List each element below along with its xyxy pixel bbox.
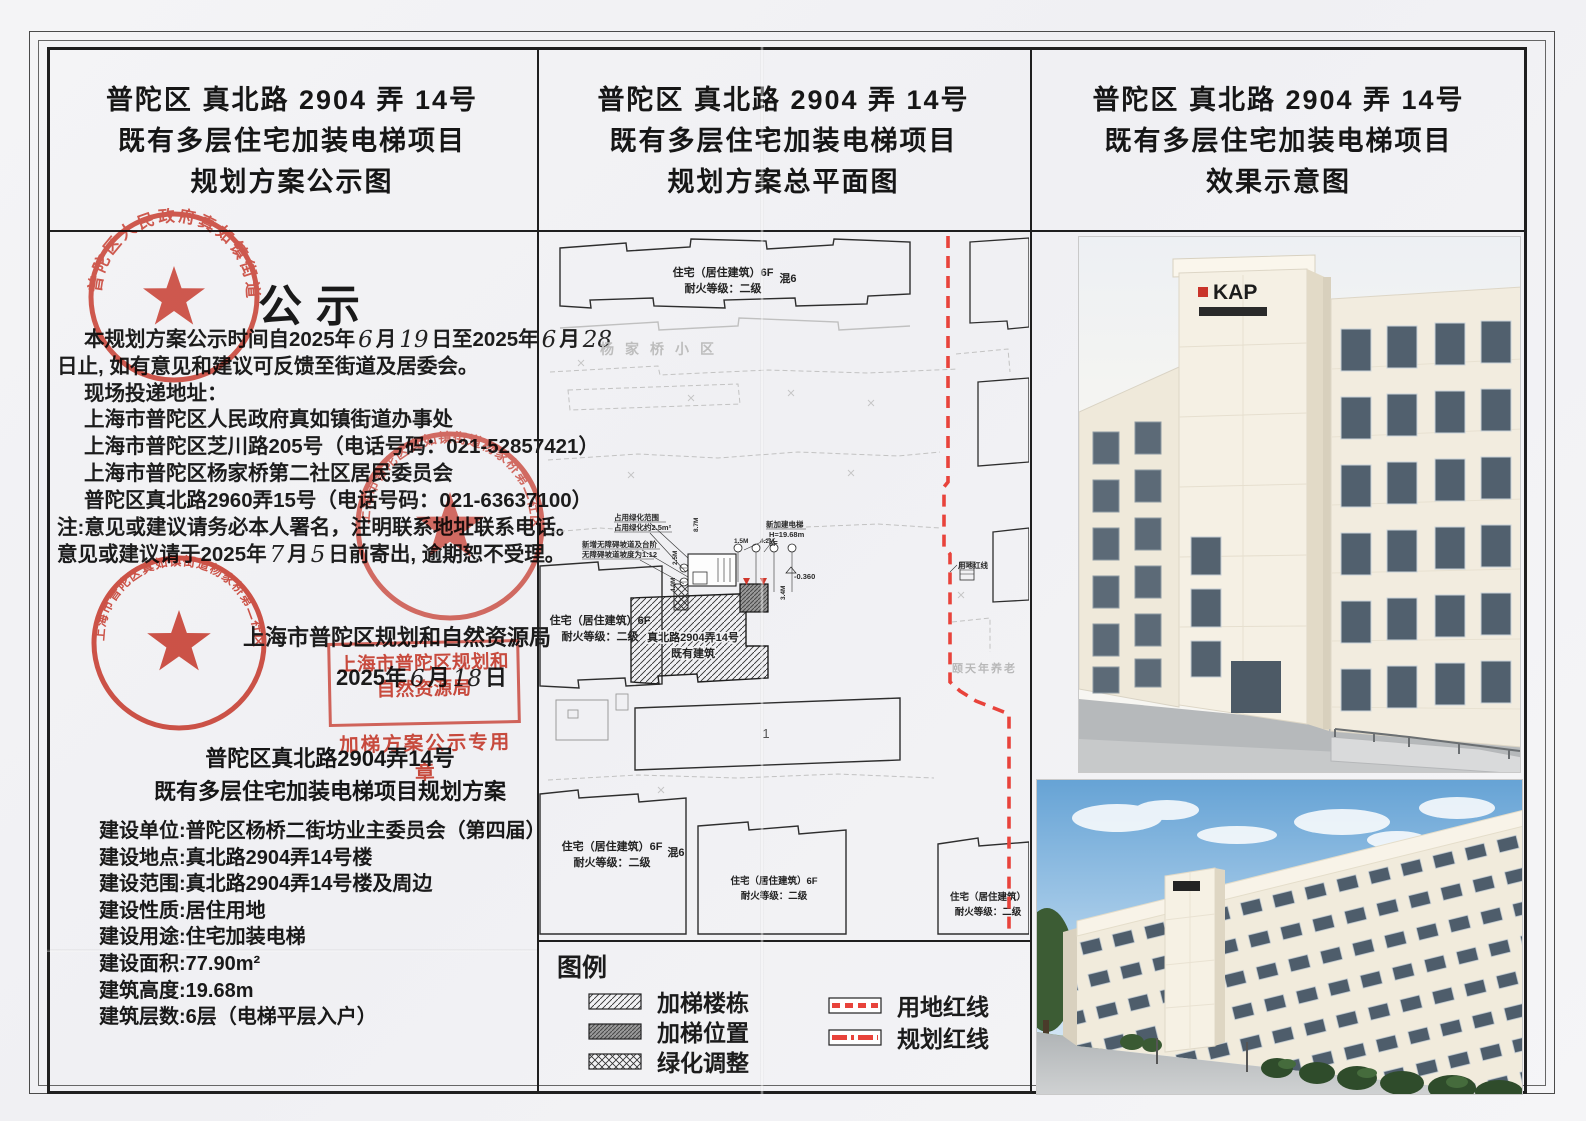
existing-building-label2: 既有建筑 xyxy=(671,646,715,660)
field-row: 建设单位:普陀区杨桥二街坊业主委员会（第四届） xyxy=(99,818,546,845)
field-row: 建筑高度:19.68m xyxy=(99,978,546,1005)
title-line: 规划方案总平面图 xyxy=(537,162,1030,203)
ann-green-2: 占用绿化约2.5m² xyxy=(614,522,672,532)
svg-text:耐火等级：二级: 耐火等级：二级 xyxy=(562,629,640,643)
ann-ramp-1: 新增无障碍坡道及台阶 xyxy=(582,539,657,549)
community-seal-overlap: 上海市普陀区真如镇街道杨家桥第二社区居民委员会 xyxy=(352,428,548,624)
legend-swatch-dense-hatch xyxy=(588,1023,642,1040)
seal-star-icon xyxy=(416,492,484,557)
gray-mark: 混6 xyxy=(779,271,796,285)
middle-panel-title: 普陀区 真北路 2904 弄 14号 既有多层住宅加装电梯项目 规划方案总平面图 xyxy=(537,80,1030,203)
legend-item-elevator-position: 加梯位置 xyxy=(588,1014,749,1048)
rendering-street-view xyxy=(1036,779,1523,1095)
logo-subtext-bar xyxy=(1199,307,1267,316)
block-number: 1 xyxy=(762,726,769,741)
field-row: 建设性质:居住用地 xyxy=(99,898,546,925)
land-redline xyxy=(944,236,1009,932)
ann-green-1: 占用绿化范围 xyxy=(614,512,659,522)
building-top-label: 住宅（居住建筑）6F 耐火等级：二级 混6 xyxy=(673,265,797,295)
building-bottommid-label: 住宅（居住建筑）6F 耐火等级：二级 xyxy=(730,875,817,902)
main-facade xyxy=(1331,287,1521,747)
svg-text:住宅（居住建筑）6F: 住宅（居住建筑）6F xyxy=(730,875,817,887)
street-office-seal: 普陀区人民政府真如镇街道办事处 xyxy=(85,208,263,386)
legend-swatch-diagonal-hatch xyxy=(588,993,642,1010)
svg-text:住宅（居住建筑）6F: 住宅（居住建筑）6F xyxy=(673,265,774,279)
legend-swatch-red-dashdot xyxy=(828,1029,882,1046)
svg-text:耐火等级：二级: 耐火等级：二级 xyxy=(574,855,652,869)
svg-text:2.5M: 2.5M xyxy=(672,551,679,565)
scanned-notice-page: 普陀区 真北路 2904 弄 14号 既有多层住宅加装电梯项目 规划方案公示图 … xyxy=(0,0,1586,1121)
title-line: 普陀区 真北路 2904 弄 14号 xyxy=(537,80,1030,121)
svg-text:住宅（居住建筑）: 住宅（居住建筑） xyxy=(950,891,1026,903)
handwritten-month: 6 xyxy=(355,327,376,353)
svg-text:4.0M: 4.0M xyxy=(670,578,677,592)
column-divider-right xyxy=(1030,47,1032,1094)
tower-logo-text: KAP xyxy=(1213,281,1257,304)
buildings-right-partial xyxy=(960,238,1029,602)
legend-swatch-crosshatch xyxy=(588,1053,642,1070)
ann-lift-1: 新加建电梯 xyxy=(766,519,804,529)
field-row: 建设范围:真北路2904弄14号楼及周边 xyxy=(99,871,546,898)
handwritten-day: 5 xyxy=(308,542,329,568)
project-fields: 建设单位:普陀区杨桥二街坊业主委员会（第四届） 建设地点:真北路2904弄14号… xyxy=(99,818,546,1031)
existing-building-label1: 真北路2904弄14号 xyxy=(647,630,739,644)
field-row: 建筑层数:6层（电梯平层入户） xyxy=(99,1004,546,1031)
title-line: 普陀区 真北路 2904 弄 14号 xyxy=(1030,80,1527,121)
title-line: 效果示意图 xyxy=(1030,162,1527,203)
project-name: 普陀区真北路2904弄14号 既有多层住宅加装电梯项目规划方案 xyxy=(120,742,540,808)
legend-item-planning-redline: 规划红线 xyxy=(828,1020,989,1054)
title-line: 既有多层住宅加装电梯项目 xyxy=(47,121,537,162)
building-bottomright-label: 住宅（居住建筑） 耐火等级：二级 xyxy=(950,891,1026,918)
handwritten-day: 19 xyxy=(396,327,431,353)
field-row: 建设地点:真北路2904弄14号楼 xyxy=(99,845,546,872)
svg-text:住宅（居住建筑）6F: 住宅（居住建筑）6F xyxy=(562,839,663,853)
legend-item-land-redline: 用地红线 xyxy=(828,988,989,1022)
legend-item-retrofit-building: 加梯楼栋 xyxy=(588,984,749,1018)
legend-item-greenery-adjust: 绿化调整 xyxy=(588,1044,749,1078)
right-panel-title: 普陀区 真北路 2904 弄 14号 既有多层住宅加装电梯项目 效果示意图 xyxy=(1030,80,1527,203)
planning-bureau-rect-seal: 上海市普陀区规划和自然资源局 加梯方案公示专用章 xyxy=(327,639,521,727)
ann-ramp-2: 无障碍坡道坡度为1:12 xyxy=(581,549,657,559)
svg-text:1.5M: 1.5M xyxy=(734,538,748,545)
svg-text:耐火等级：二级: 耐火等级：二级 xyxy=(741,890,808,902)
elevator-tower: KAP xyxy=(1173,255,1329,731)
logo-red-square xyxy=(1198,287,1208,297)
notice-heading: 公示 xyxy=(258,270,374,334)
title-line: 既有多层住宅加装电梯项目 xyxy=(1030,121,1527,162)
left-wing xyxy=(1079,367,1179,707)
legend-separator-line xyxy=(539,940,1030,942)
building-bottomleft-label: 住宅（居住建筑）6F 耐火等级：二级 混6 xyxy=(562,839,685,869)
seal-star-icon xyxy=(147,610,211,670)
title-line: 普陀区 真北路 2904 弄 14号 xyxy=(47,80,537,121)
svg-text:4.2M: 4.2M xyxy=(760,538,774,545)
care-home-label: 颐天年养老 xyxy=(952,661,1017,675)
title-line: 既有多层住宅加装电梯项目 xyxy=(537,121,1030,162)
field-row: 建设用途:住宅加装电梯 xyxy=(99,924,546,951)
svg-text:耐火等级：二级: 耐火等级：二级 xyxy=(955,906,1022,918)
building-bottomright xyxy=(938,838,1029,934)
field-row: 建设面积:77.90m² xyxy=(99,951,546,978)
legend-title: 图例 xyxy=(557,948,607,984)
site-plan: 住宅（居住建筑）6F 耐火等级：二级 混6 杨家桥小区 住宅（居住建筑）6F 耐… xyxy=(538,232,1029,938)
level-annotation: -0.360 xyxy=(794,572,815,581)
svg-text:耐火等级：二级: 耐火等级：二级 xyxy=(685,281,763,295)
survey-tick-marks xyxy=(578,360,964,793)
rect-seal-line1: 上海市普陀区规划和自然资源局 xyxy=(330,647,517,703)
svg-text:用地红线: 用地红线 xyxy=(958,560,988,570)
gray-mark: 混6 xyxy=(667,845,684,859)
entrance-door xyxy=(1231,661,1281,713)
svg-text:3.4M: 3.4M xyxy=(780,586,787,600)
title-line: 规划方案公示图 xyxy=(47,162,537,203)
tower-logo-bar xyxy=(1173,881,1200,891)
left-panel-title: 普陀区 真北路 2904 弄 14号 既有多层住宅加装电梯项目 规划方案公示图 xyxy=(47,80,537,203)
seal-star-icon xyxy=(143,266,205,325)
svg-text:8.7M: 8.7M xyxy=(693,518,700,532)
rendering-corner-view: KAP xyxy=(1078,236,1521,773)
new-elevator-position xyxy=(740,584,768,612)
sidewalk-dashed-paths xyxy=(548,349,1010,780)
recess-strip xyxy=(1323,277,1331,729)
building-block-1: 1 xyxy=(556,694,900,770)
elevator-tower-street xyxy=(1165,868,1225,1052)
legend-swatch-red-dashed xyxy=(828,997,882,1014)
neighborhood-label: 杨家桥小区 xyxy=(600,341,725,357)
